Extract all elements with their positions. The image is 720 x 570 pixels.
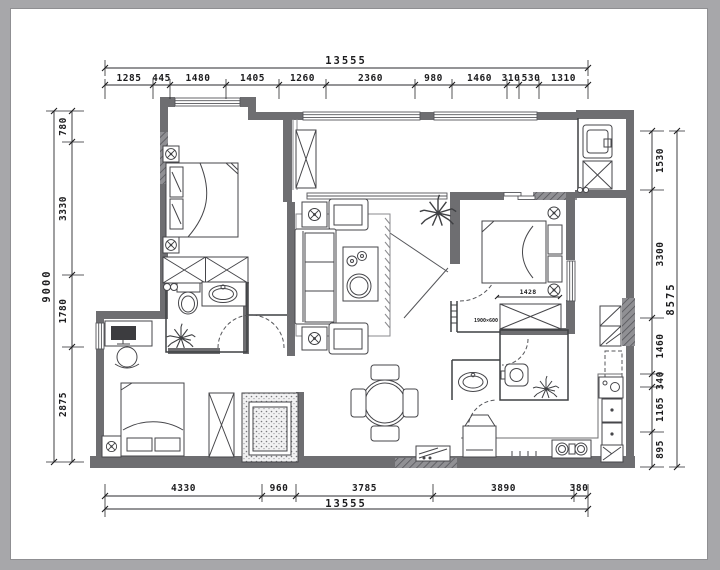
window-balcony-left	[303, 112, 420, 120]
bed-topleft	[166, 163, 238, 237]
coffee-table	[343, 247, 378, 301]
window-balcony-right	[434, 112, 537, 120]
corridor-sink	[599, 377, 623, 398]
window-bedroom-right	[567, 261, 575, 301]
dim-top-seg-3: 1405	[240, 73, 265, 84]
room-bedroom-bottomleft	[102, 321, 298, 462]
room-living	[295, 130, 456, 354]
bed-right	[482, 221, 546, 283]
utility-sink	[583, 125, 612, 158]
dim-top-seg-4: 1260	[290, 73, 315, 84]
fridge	[601, 445, 623, 462]
dim-top-total: 13555	[325, 55, 367, 67]
toilet-left	[177, 283, 200, 314]
kitchen-cabinets	[602, 399, 622, 445]
dresser-right	[500, 304, 561, 329]
dim-top-seg-0: 1285	[117, 73, 142, 84]
appliance-dashed-box	[605, 351, 622, 377]
dim-right-seg-4: 1165	[655, 397, 666, 422]
dim-bottom-seg-3: 3890	[491, 483, 516, 494]
dim-top-seg-1: 445	[152, 73, 171, 84]
room-bedroom-topleft	[163, 146, 248, 283]
room-bathroom-right	[501, 364, 559, 398]
dim-left-seg-0: 780	[58, 117, 69, 136]
dim-bottom-seg-0: 4330	[171, 483, 196, 494]
dim-bottom-seg-4: 380	[570, 483, 589, 494]
entry-sill	[416, 446, 450, 461]
balcony-cabinet	[296, 130, 316, 188]
window-bedroom-bottomleft	[96, 323, 104, 349]
corridor-cabinets	[599, 306, 623, 398]
room-dining	[351, 365, 450, 461]
bed-width-label: 1428	[520, 288, 537, 296]
plant-bathroom-right	[533, 376, 559, 398]
dim-left-seg-2: 1780	[58, 299, 69, 324]
door-arc-hall	[251, 315, 284, 348]
wardrobe-topleft	[163, 257, 248, 283]
dim-top-seg-7: 1460	[467, 73, 492, 84]
sliding-door-balcony	[307, 193, 447, 199]
dim-top-seg-2: 1480	[186, 73, 211, 84]
shower-unit	[501, 364, 528, 386]
dim-top-seg-9: 530	[522, 73, 541, 84]
armchair-bottom	[329, 323, 368, 354]
bed-bottomleft	[121, 383, 184, 456]
dim-top-seg-5: 2360	[358, 73, 383, 84]
dimension-bottom: 4330 960 3785 3890 380 13555	[102, 483, 591, 517]
dim-top-seg-8: 310	[502, 73, 521, 84]
wardrobe-bottomleft	[209, 393, 234, 457]
dim-right-seg-1: 3300	[655, 242, 666, 267]
window-bedroom-topleft	[175, 98, 240, 106]
tatami-closet	[242, 393, 298, 462]
dim-right-seg-5: 895	[655, 440, 666, 459]
dim-bottom-seg-2: 3785	[352, 483, 377, 494]
room-vanity-nook	[459, 373, 488, 392]
sofa	[295, 229, 336, 324]
dimension-top: 13555 1285 445 1480 1405 1260 2360 980 1…	[102, 55, 591, 99]
vanity-left	[202, 282, 246, 306]
dim-top-seg-10: 1310	[551, 73, 576, 84]
sliding-door-bedroom-right	[504, 193, 535, 200]
dim-bottom-seg-1: 960	[270, 483, 289, 494]
dimension-left: 780 3330 1780 2875 9000	[41, 108, 84, 465]
floor-plan-page: 1428 1900×600	[0, 0, 720, 570]
plant-bathroom-left	[167, 324, 196, 348]
dimension-right: 1530 3300 1460 340 1165 895 8575	[640, 128, 685, 470]
dim-right-total: 8575	[665, 282, 677, 315]
dim-top-seg-6: 980	[424, 73, 443, 84]
desk	[105, 321, 152, 346]
armchair-top	[329, 199, 368, 230]
dim-right-seg-0: 1530	[655, 148, 666, 173]
room-utility	[578, 125, 613, 193]
hatched-cabinet	[600, 306, 621, 346]
dim-right-seg-3: 340	[655, 371, 666, 390]
dim-left-total: 9000	[41, 269, 53, 302]
room-bedroom-right: 1428 1900×600	[474, 207, 562, 329]
dim-left-seg-3: 2875	[58, 392, 69, 417]
room-bathroom-left	[164, 282, 247, 348]
desk-chair	[115, 347, 139, 368]
stove	[552, 440, 591, 458]
wall-note-label: 1900×600	[474, 318, 498, 324]
utility-unit	[583, 161, 612, 189]
dim-left-seg-1: 3330	[58, 196, 69, 221]
floor-plan-canvas: 1428 1900×600	[0, 0, 720, 570]
door-arc-bathroom-right	[502, 339, 528, 365]
dim-right-seg-2: 1460	[655, 334, 666, 359]
dim-bottom-total: 13555	[325, 498, 367, 510]
washing-machine	[463, 415, 496, 457]
